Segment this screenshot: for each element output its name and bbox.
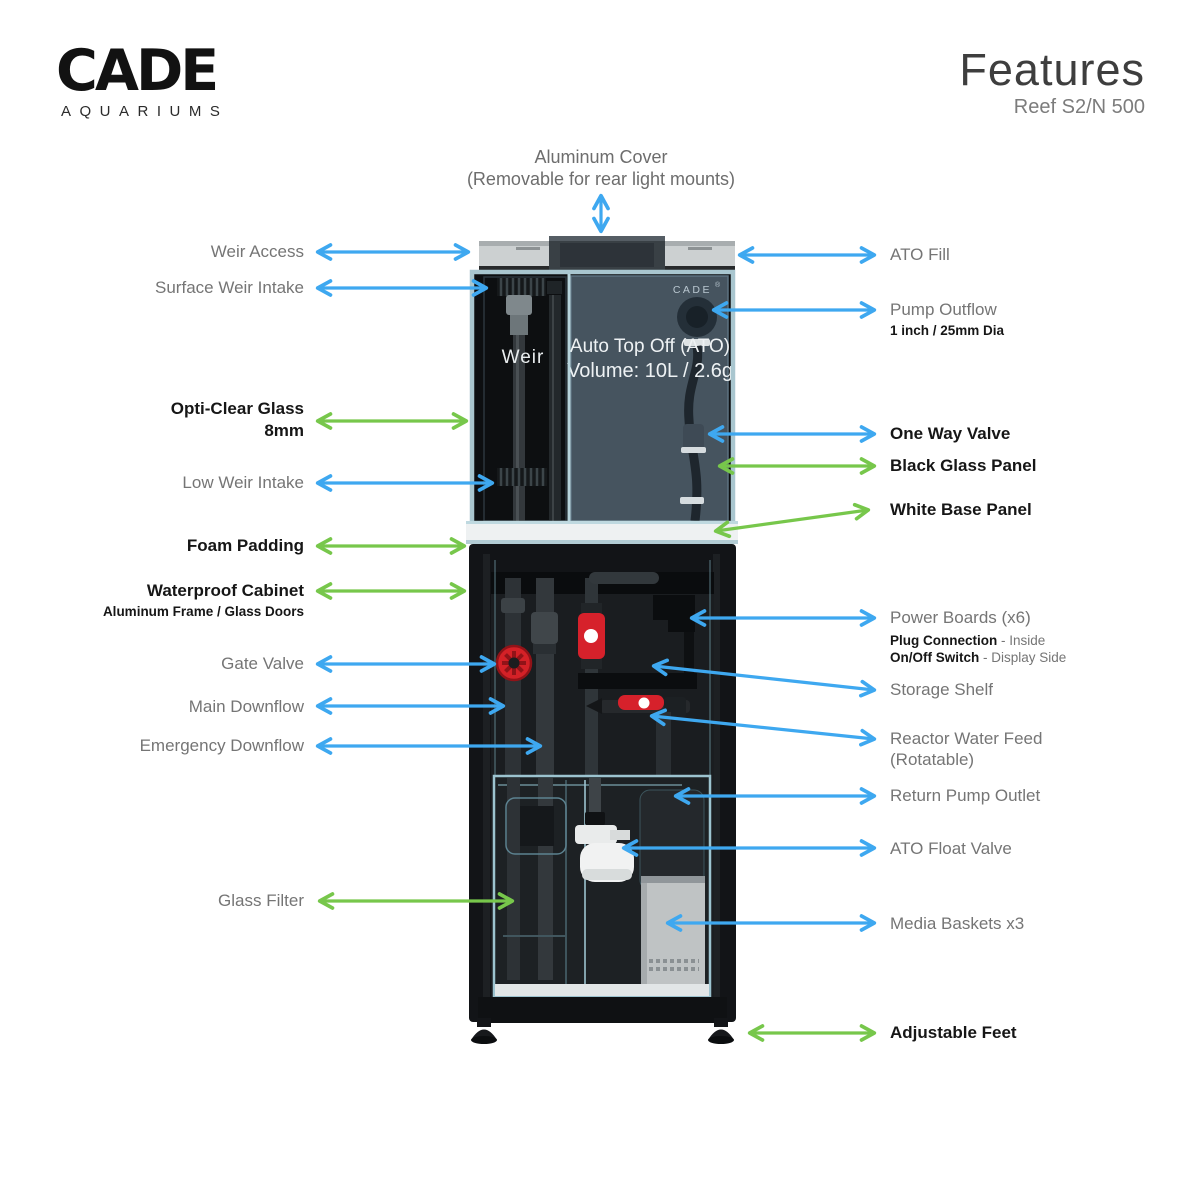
rear-cover-center-graphic xyxy=(549,236,665,271)
base-and-feet-graphic xyxy=(471,997,734,1044)
weir-label: Weir xyxy=(502,347,545,368)
tank-brand-registered: ® xyxy=(715,281,721,289)
feature-sheet: CADE AQUARIUMS Features Reef S2/N 500 Al… xyxy=(0,0,1200,1200)
media-basket-graphic xyxy=(640,790,705,988)
ato-caption-line1: Auto Top Off (ATO) xyxy=(570,336,730,357)
features-diagram: Weir CADE ® Auto Top xyxy=(0,0,1200,1200)
one-way-valve-graphic xyxy=(681,424,706,453)
arrow-white-base-panel xyxy=(716,510,868,531)
ball-valve-graphic xyxy=(578,613,605,659)
white-base-panel-graphic xyxy=(466,521,738,544)
storage-shelf-graphic xyxy=(578,673,697,689)
tube-clamp-graphic xyxy=(680,497,704,504)
gate-valve-graphic xyxy=(497,646,531,680)
aluminum-cover-right-graphic xyxy=(665,241,735,270)
ato-caption-line2: Volume: 10L / 2.6g xyxy=(567,360,733,382)
display-tank-graphic: Weir CADE ® Auto Top xyxy=(472,272,733,523)
sump-graphic xyxy=(494,776,710,997)
tank-brand-mark: CADE xyxy=(673,284,712,296)
